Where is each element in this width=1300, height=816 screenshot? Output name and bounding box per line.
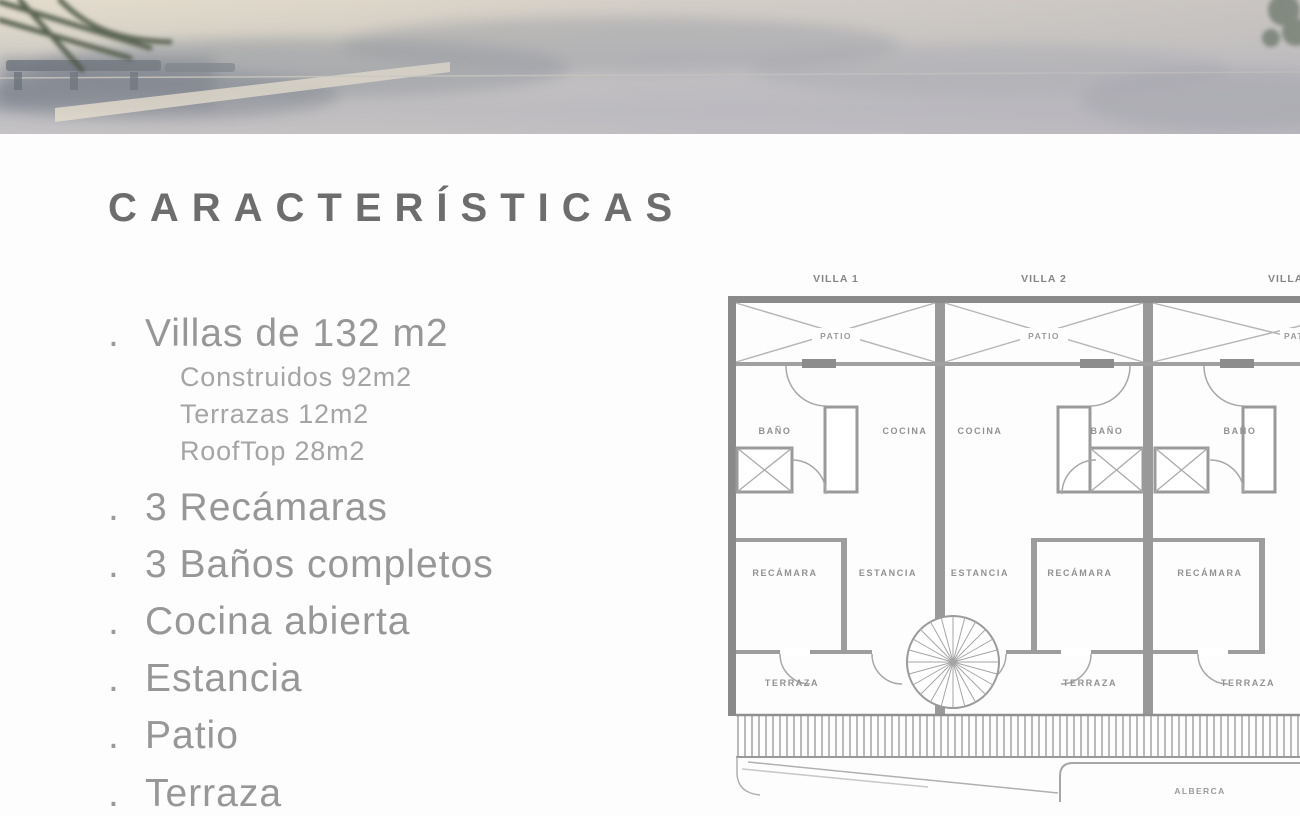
hero-photo bbox=[0, 0, 1300, 134]
bullet-dot: . bbox=[108, 543, 145, 587]
floorplan-svg: VILLA 1 VILLA 2 VILLA 3 PATIO PATIO PATI… bbox=[728, 262, 1300, 802]
bullet-dot: . bbox=[108, 312, 145, 356]
feature-label: Patio bbox=[145, 714, 239, 757]
feature-sub-terrazas: Terrazas 12m2 bbox=[180, 399, 369, 430]
villa3-terraza-label: TERRAZA bbox=[1221, 678, 1275, 688]
villa1-patio-label: PATIO bbox=[820, 331, 852, 341]
villa1-recamara-label: RECÁMARA bbox=[752, 568, 817, 578]
feature-item-banos: .3 Baños completos bbox=[108, 543, 494, 587]
villa3-recamara-label: RECÁMARA bbox=[1177, 568, 1242, 578]
feature-label: Cocina abierta bbox=[145, 600, 410, 643]
pool-edge bbox=[1060, 763, 1300, 802]
feature-label: 3 Recámaras bbox=[145, 486, 388, 529]
ground-lines bbox=[737, 757, 1058, 795]
feature-item-recamaras: .3 Recámaras bbox=[108, 486, 388, 530]
bullet-dot: . bbox=[108, 486, 145, 530]
feature-label: Terraza bbox=[145, 772, 282, 815]
feature-item-estancia: .Estancia bbox=[108, 657, 303, 701]
shower-boxes bbox=[737, 448, 1208, 492]
terraza-walls bbox=[736, 650, 1265, 654]
villa3-bano-label: BAÑO bbox=[1224, 426, 1257, 436]
villa2-cocina-label: COCINA bbox=[957, 426, 1002, 436]
villa1-label: VILLA 1 bbox=[813, 273, 859, 285]
villa2-patio-label: PATIO bbox=[1028, 331, 1060, 341]
villa1-bano-label: BAÑO bbox=[759, 426, 792, 436]
villa1-cocina-label: COCINA bbox=[882, 426, 927, 436]
feature-label: Villas de 132 m2 bbox=[145, 312, 449, 355]
bullet-dot: . bbox=[108, 714, 145, 758]
feature-sub-rooftop: RoofTop 28m2 bbox=[180, 436, 365, 467]
villa1-terraza-label: TERRAZA bbox=[765, 678, 819, 688]
villa2-bano-label: BAÑO bbox=[1091, 426, 1124, 436]
villa2-label: VILLA 2 bbox=[1021, 273, 1067, 285]
feature-item-terraza: .Terraza bbox=[108, 772, 282, 816]
feature-label: 3 Baños completos bbox=[145, 543, 494, 586]
bullet-dot: . bbox=[108, 600, 145, 644]
tint-overlay bbox=[0, 0, 1300, 134]
brochure-page: { "content": { "title": "CARACTERÍSTICAS… bbox=[0, 0, 1300, 800]
feature-item-villas: .Villas de 132 m2 bbox=[108, 312, 449, 356]
villa2-estancia-label: ESTANCIA bbox=[951, 568, 1009, 578]
villa3-label: VILLA 3 bbox=[1268, 273, 1300, 285]
spiral-staircase bbox=[907, 616, 999, 708]
villa2-terraza-label: TERRAZA bbox=[1063, 678, 1117, 688]
bullet-dot: . bbox=[108, 657, 145, 701]
interior-walls bbox=[736, 538, 1265, 654]
villa2-recamara-label: RECÁMARA bbox=[1047, 568, 1112, 578]
hero-photo-art bbox=[0, 0, 1300, 134]
page-title: CARACTERÍSTICAS bbox=[108, 186, 685, 231]
feature-sub-construidos: Construidos 92m2 bbox=[180, 362, 412, 393]
feature-item-cocina: .Cocina abierta bbox=[108, 600, 410, 644]
feature-label: Estancia bbox=[145, 657, 303, 700]
feature-item-patio: .Patio bbox=[108, 714, 239, 758]
bullet-dot: . bbox=[108, 772, 145, 816]
deck-strip bbox=[736, 715, 1300, 757]
floorplan: VILLA 1 VILLA 2 VILLA 3 PATIO PATIO PATI… bbox=[728, 262, 1300, 802]
alberca-label: ALBERCA bbox=[1174, 786, 1225, 796]
villa1-estancia-label: ESTANCIA bbox=[859, 568, 917, 578]
villa3-patio-label: PATIO bbox=[1284, 331, 1300, 341]
